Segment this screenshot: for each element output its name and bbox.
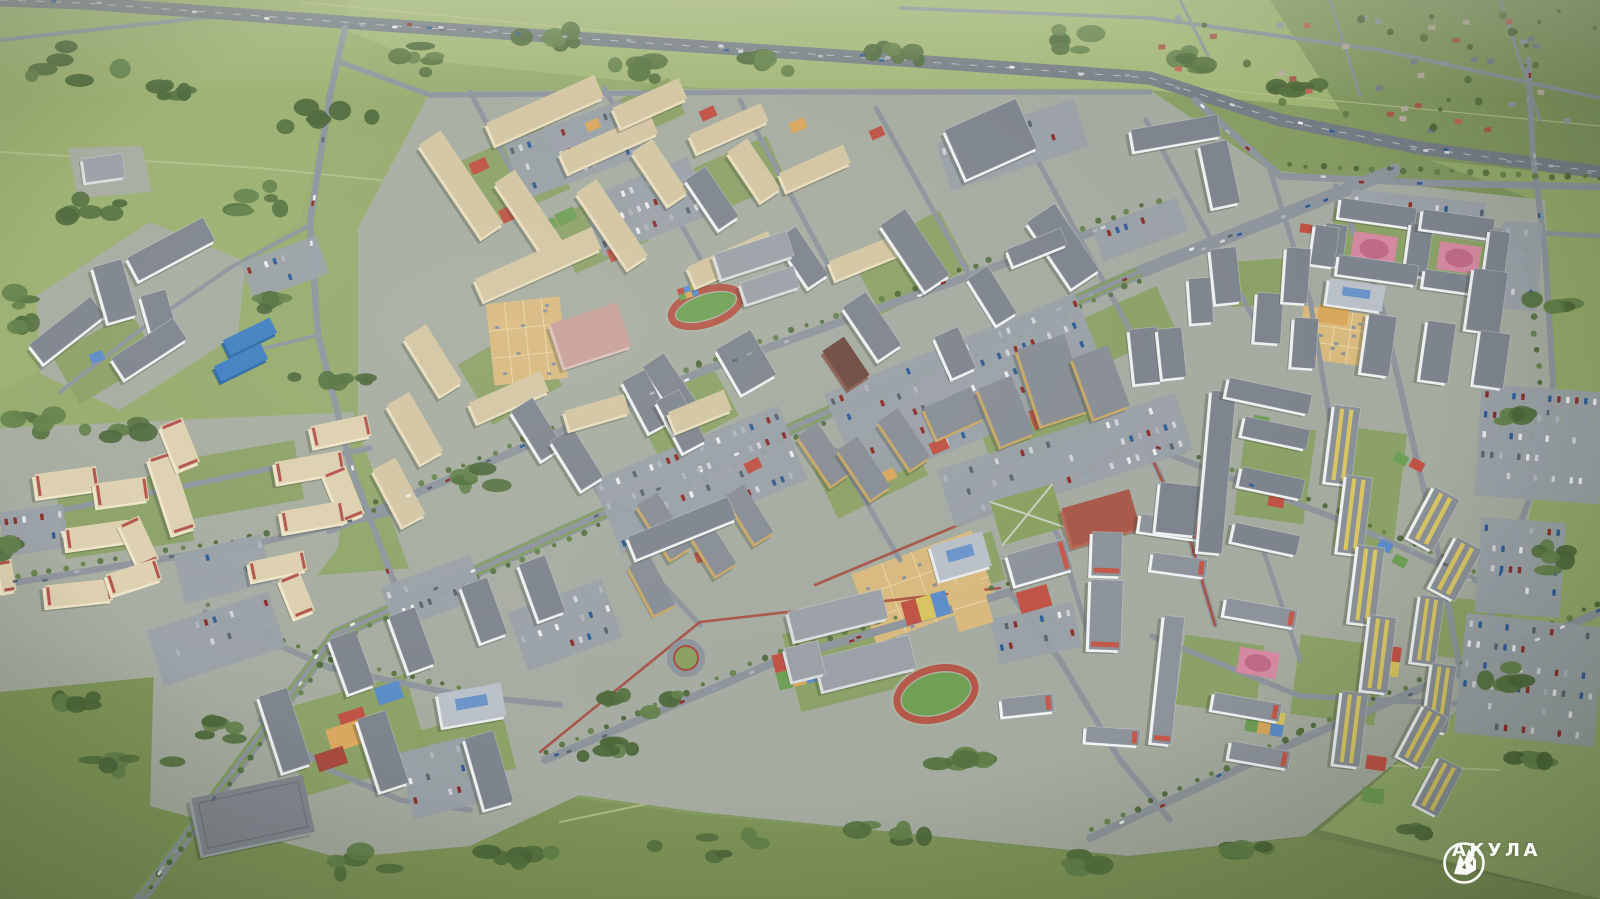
- tree: [882, 42, 901, 56]
- car: [818, 55, 823, 58]
- village-house: [1158, 44, 1165, 49]
- street-tree: [46, 568, 51, 573]
- tree: [12, 301, 26, 309]
- parked-car: [1564, 671, 1568, 678]
- tree: [201, 715, 226, 727]
- tree: [592, 744, 620, 757]
- street-tree: [298, 690, 303, 695]
- tree: [1254, 841, 1273, 852]
- street-tree: [1282, 737, 1289, 744]
- village-house: [1537, 89, 1545, 95]
- car: [879, 59, 884, 62]
- tree: [1534, 565, 1562, 576]
- street-tree: [178, 846, 184, 852]
- car: [1078, 73, 1083, 76]
- parked-car: [1538, 415, 1542, 422]
- street-tree: [1403, 686, 1408, 691]
- parked-car: [1488, 703, 1492, 710]
- tree: [617, 688, 631, 702]
- street-tree: [1467, 169, 1474, 176]
- village-house: [1527, 36, 1535, 42]
- street-tree: [1564, 173, 1571, 180]
- tree: [1500, 661, 1522, 674]
- street-tree: [621, 716, 626, 721]
- street-tree: [312, 649, 317, 654]
- tree: [754, 57, 769, 71]
- street-tree: [973, 263, 978, 268]
- parked-car: [1517, 453, 1521, 460]
- tree: [747, 837, 769, 849]
- street-tree: [1306, 497, 1311, 502]
- street-tree: [1483, 169, 1490, 176]
- village-tree: [1523, 63, 1527, 67]
- parked-car: [1512, 645, 1516, 652]
- parked-car: [1519, 547, 1523, 554]
- village-tree: [1513, 29, 1518, 34]
- tree: [55, 207, 78, 225]
- parked-car: [1506, 473, 1510, 480]
- parked-car: [1525, 587, 1529, 594]
- garden-hut: [503, 372, 507, 375]
- tree: [225, 722, 243, 735]
- street-tree: [457, 685, 461, 689]
- street-tree: [1450, 169, 1454, 173]
- car: [718, 44, 723, 47]
- street-tree: [1531, 313, 1538, 320]
- village-house: [1563, 118, 1571, 124]
- street-tree: [1135, 806, 1141, 812]
- street-tree: [198, 543, 202, 547]
- parked-car: [1546, 669, 1550, 676]
- building-wh: [1306, 224, 1340, 270]
- tree: [225, 206, 254, 216]
- street-tree: [238, 767, 244, 773]
- parked-car: [1535, 455, 1539, 462]
- street-tree: [1303, 165, 1307, 169]
- car: [724, 49, 729, 52]
- street-tree: [1500, 172, 1506, 178]
- tree: [2, 284, 28, 302]
- parked-car: [1467, 640, 1471, 647]
- street-tree: [1229, 467, 1234, 472]
- car: [310, 241, 313, 246]
- tree: [640, 705, 661, 719]
- street-tree: [1287, 162, 1292, 167]
- tree: [118, 755, 139, 763]
- tree: [79, 423, 91, 435]
- parked-car: [1503, 644, 1507, 651]
- street-tree: [1566, 615, 1572, 621]
- street-tree: [1516, 172, 1522, 178]
- village-tree: [1438, 107, 1443, 112]
- street-tree: [596, 523, 600, 527]
- parked-car: [1476, 641, 1480, 648]
- road: [340, 62, 430, 95]
- playground-red: [1365, 755, 1387, 772]
- parking-lot: [1474, 384, 1600, 504]
- street-tree: [535, 549, 541, 555]
- garden-hut: [547, 372, 551, 375]
- parked-car: [1552, 689, 1556, 696]
- parked-car: [1557, 396, 1561, 403]
- village-house: [1399, 116, 1407, 122]
- street-tree: [1471, 569, 1476, 574]
- street-tree: [391, 671, 397, 677]
- parked-car: [1555, 670, 1559, 677]
- street-tree: [1095, 218, 1101, 224]
- tree: [649, 73, 661, 84]
- tree: [65, 696, 87, 712]
- street-tree: [893, 616, 897, 620]
- parked-car: [1492, 545, 1496, 552]
- tree: [419, 67, 432, 77]
- parked-car: [1587, 478, 1591, 485]
- street-tree: [985, 257, 991, 263]
- parked-car: [1496, 623, 1500, 630]
- tree: [99, 757, 118, 773]
- street-tree: [308, 678, 313, 683]
- parked-car: [1572, 437, 1576, 444]
- tree: [638, 53, 668, 69]
- car: [467, 28, 472, 31]
- tree: [425, 52, 444, 60]
- street-tree: [1327, 717, 1332, 722]
- village-tree: [1524, 43, 1529, 48]
- parked-car: [1483, 662, 1487, 669]
- street-tree: [461, 463, 465, 467]
- tree: [1507, 674, 1535, 687]
- parked-car: [1569, 477, 1573, 484]
- parked-car: [1537, 668, 1541, 675]
- street-tree: [1111, 215, 1116, 220]
- parked-car: [1579, 692, 1583, 699]
- playground-grn: [1361, 787, 1385, 805]
- village-tree: [1342, 111, 1349, 118]
- parked-car: [1550, 629, 1554, 636]
- parked-car: [1532, 627, 1536, 634]
- roof-accent: [1091, 641, 1119, 647]
- street-tree: [431, 474, 437, 480]
- street-tree: [1531, 331, 1537, 337]
- village-house: [1342, 44, 1349, 49]
- tree: [625, 742, 639, 756]
- tree: [355, 373, 377, 383]
- car: [1321, 175, 1326, 178]
- street-tree: [186, 831, 193, 838]
- garden-hut: [1318, 334, 1322, 338]
- street-tree: [1321, 163, 1327, 169]
- parked-car: [1480, 584, 1484, 591]
- tree: [85, 691, 100, 704]
- parked-car: [1495, 724, 1499, 731]
- tree: [364, 109, 379, 124]
- street-tree: [1123, 209, 1129, 215]
- car: [562, 35, 567, 38]
- parked-car: [1490, 452, 1494, 459]
- street-tree: [1162, 791, 1168, 797]
- tree: [577, 750, 590, 762]
- garden-hut: [543, 309, 547, 312]
- street-tree: [1195, 778, 1199, 782]
- village-house: [1463, 19, 1470, 25]
- street-tree: [1209, 771, 1214, 776]
- tree: [145, 79, 172, 93]
- street-tree: [762, 655, 768, 661]
- parked-car: [1556, 529, 1560, 536]
- street-tree: [418, 480, 424, 486]
- street-tree: [206, 603, 211, 608]
- street-tree: [367, 623, 372, 628]
- street-tree: [1337, 165, 1342, 170]
- parked-car: [1575, 732, 1579, 739]
- street-tree: [1368, 524, 1372, 528]
- village-house: [1376, 85, 1383, 90]
- street-tree: [317, 662, 324, 669]
- street-tree: [31, 570, 38, 577]
- tree: [1190, 57, 1217, 73]
- tree: [1061, 858, 1077, 867]
- building-wh: [1287, 317, 1319, 371]
- tree: [177, 83, 192, 101]
- tree: [327, 855, 346, 868]
- parked-car: [1469, 620, 1473, 627]
- parked-car: [1586, 633, 1590, 640]
- street-tree: [1091, 298, 1096, 303]
- village-tree: [1447, 98, 1451, 102]
- village-tree: [1243, 59, 1251, 67]
- parked-car: [1511, 288, 1515, 295]
- village-tree: [1557, 9, 1561, 13]
- garden-hut: [521, 324, 525, 327]
- street-tree: [1311, 723, 1316, 728]
- tree: [257, 304, 273, 314]
- car: [192, 10, 197, 13]
- tree: [1521, 291, 1542, 308]
- parked-car: [1518, 567, 1522, 574]
- street-tree: [1434, 169, 1440, 175]
- village-tree: [1464, 76, 1471, 83]
- tree: [100, 205, 123, 221]
- tree: [33, 415, 54, 432]
- parked-car: [1505, 624, 1509, 631]
- parked-car: [1463, 680, 1467, 687]
- court-surface: [1299, 223, 1312, 234]
- car: [885, 56, 890, 59]
- tree: [1084, 856, 1114, 875]
- car: [1528, 73, 1531, 78]
- building-wr: [1082, 579, 1123, 654]
- car: [264, 17, 269, 20]
- parked-car: [1526, 454, 1530, 461]
- parked-car: [1593, 399, 1597, 406]
- car: [1359, 181, 1364, 184]
- tree: [781, 65, 795, 77]
- tree: [65, 74, 94, 87]
- village-house: [1303, 23, 1310, 29]
- garden-hut: [1330, 347, 1334, 351]
- car: [1526, 97, 1529, 102]
- car: [1009, 66, 1014, 69]
- village-tree: [1532, 62, 1538, 68]
- car: [516, 32, 521, 35]
- village-tree: [1475, 97, 1483, 105]
- parked-car: [1581, 672, 1585, 679]
- tree: [329, 101, 351, 120]
- street-tree: [81, 561, 86, 566]
- tree: [923, 757, 953, 770]
- parked-car: [1539, 728, 1543, 735]
- street-tree: [715, 676, 719, 680]
- tree: [482, 479, 512, 492]
- street-tree: [163, 547, 168, 552]
- parked-car: [1501, 546, 1505, 553]
- street-tree: [820, 320, 824, 324]
- street-tree: [181, 545, 186, 550]
- village-tree: [1387, 29, 1394, 36]
- street-tree: [519, 557, 525, 563]
- tree: [78, 205, 102, 219]
- street-tree: [149, 885, 153, 889]
- street-tree: [371, 508, 376, 513]
- parked-car: [1556, 416, 1560, 423]
- street-tree: [1400, 168, 1407, 175]
- car: [738, 50, 743, 53]
- street-tree: [683, 690, 690, 697]
- street-tree: [258, 742, 263, 747]
- building-roof: [1283, 247, 1311, 304]
- parked-car: [1557, 730, 1561, 737]
- tree: [0, 410, 26, 428]
- tree: [647, 840, 663, 852]
- street-tree: [97, 558, 103, 564]
- tree: [1512, 408, 1525, 422]
- car: [427, 26, 432, 29]
- street-tree: [1323, 503, 1328, 508]
- parked-car: [1512, 393, 1516, 400]
- street-tree: [1080, 226, 1086, 232]
- parked-car: [1548, 395, 1552, 402]
- street-tree: [373, 499, 379, 505]
- village-house: [1471, 57, 1478, 62]
- car: [1125, 74, 1130, 77]
- street-tree: [683, 367, 689, 373]
- tree: [308, 109, 329, 128]
- building-wh: [1279, 247, 1311, 306]
- parked-car: [1526, 687, 1530, 694]
- street-tree: [805, 323, 809, 327]
- garden-hut: [495, 326, 499, 329]
- street-tree: [1223, 765, 1229, 771]
- parked-car: [1465, 660, 1469, 667]
- tree: [1414, 824, 1426, 839]
- street-tree: [1418, 166, 1423, 171]
- street-tree: [1382, 530, 1386, 534]
- parked-car: [1444, 206, 1448, 213]
- parked-car: [1489, 471, 1493, 478]
- building-roof: [1188, 277, 1213, 323]
- street-tree: [773, 335, 778, 340]
- car: [359, 24, 364, 27]
- village-tree: [1429, 124, 1437, 132]
- building-wh: [1184, 277, 1213, 326]
- village-house: [1532, 43, 1540, 49]
- tree: [99, 430, 123, 443]
- street-tree: [377, 667, 381, 671]
- tree: [472, 845, 501, 859]
- village-tree: [1467, 44, 1473, 50]
- tree: [272, 200, 288, 218]
- tree: [916, 827, 932, 847]
- village-tree: [1499, 11, 1507, 19]
- car: [860, 54, 865, 57]
- street-tree: [1177, 786, 1182, 791]
- parked-car: [1485, 391, 1489, 398]
- street-tree: [1371, 696, 1376, 701]
- tree: [406, 42, 435, 51]
- parked-car: [1509, 566, 1513, 573]
- village-tree: [1537, 20, 1541, 24]
- car: [407, 23, 412, 26]
- tree: [1541, 551, 1560, 564]
- village-house: [1487, 59, 1494, 64]
- parked-car: [1524, 229, 1528, 236]
- parked-car: [1545, 435, 1549, 442]
- street-tree: [506, 563, 511, 568]
- street-tree: [1139, 203, 1143, 207]
- street-tree: [490, 568, 496, 574]
- street-tree: [879, 296, 885, 302]
- car: [1417, 182, 1422, 185]
- masterplan-scene: [0, 0, 1600, 899]
- tree: [608, 57, 622, 72]
- street-tree: [1538, 380, 1543, 385]
- car: [626, 38, 631, 41]
- parked-car: [1530, 727, 1534, 734]
- roundabout-island: [674, 646, 698, 670]
- tree: [71, 192, 89, 208]
- street-tree: [63, 566, 69, 572]
- street-tree: [747, 661, 752, 666]
- village-house: [1417, 73, 1424, 78]
- village-house: [1415, 103, 1422, 109]
- playground-red: [1299, 223, 1312, 234]
- car: [492, 29, 497, 32]
- village-tree: [1318, 87, 1323, 92]
- street-tree: [895, 291, 901, 297]
- tree: [328, 374, 347, 390]
- tree: [1544, 300, 1562, 314]
- garden-hut: [516, 352, 520, 355]
- tree: [1477, 670, 1494, 690]
- shark-logo-icon: [1441, 840, 1487, 886]
- parked-car: [1575, 397, 1579, 404]
- parked-car: [1561, 690, 1565, 697]
- village-house: [1175, 15, 1182, 20]
- village-house: [1305, 88, 1312, 94]
- parked-car: [1544, 689, 1548, 696]
- street-tree: [1137, 279, 1142, 284]
- street-tree: [821, 421, 826, 426]
- street-tree: [446, 467, 452, 473]
- parked-car: [1566, 397, 1570, 404]
- street-tree: [544, 750, 549, 755]
- tree: [671, 690, 683, 699]
- tree: [55, 40, 78, 53]
- tree: [262, 180, 277, 193]
- tree: [233, 189, 259, 204]
- tree: [510, 28, 532, 46]
- parked-car: [1494, 643, 1498, 650]
